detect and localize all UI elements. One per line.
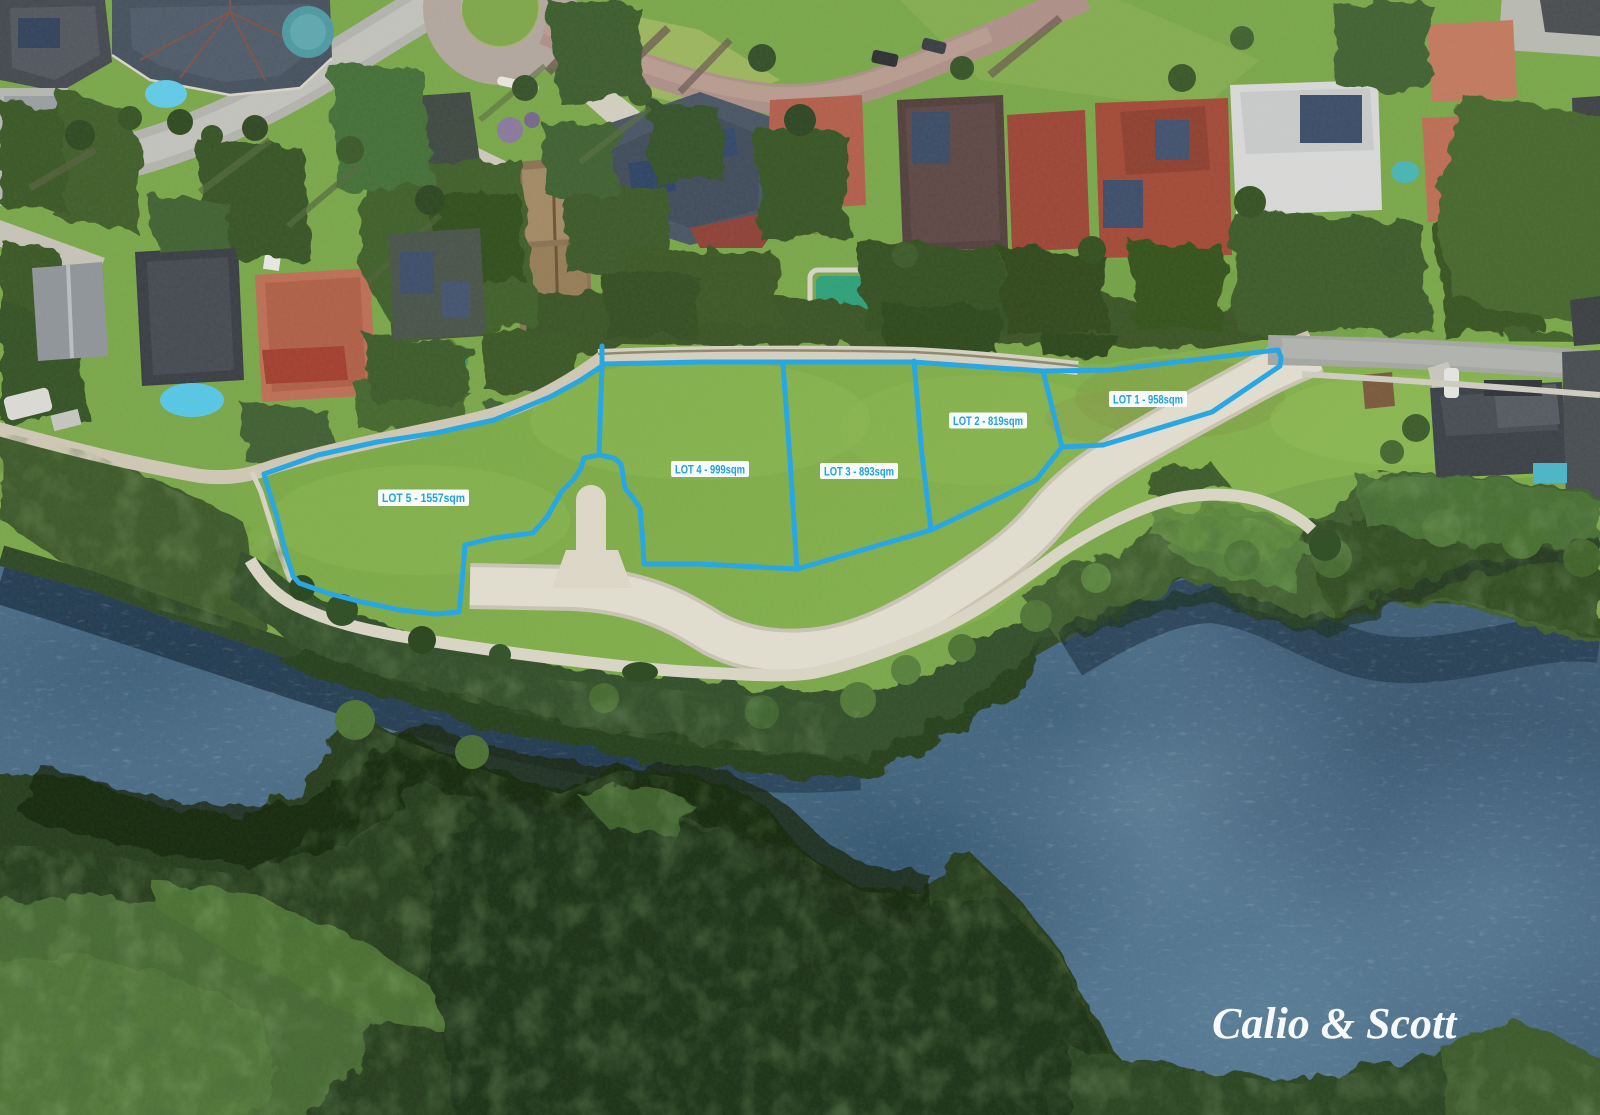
svg-text:LOT 2 - 819sqm: LOT 2 - 819sqm [953, 414, 1023, 428]
svg-text:LOT 5 - 1557sqm: LOT 5 - 1557sqm [382, 491, 465, 505]
svg-text:LOT 3 - 893sqm: LOT 3 - 893sqm [824, 465, 894, 479]
svg-text:Calio & Scott: Calio & Scott [1212, 999, 1458, 1048]
svg-text:LOT 4 - 999sqm: LOT 4 - 999sqm [675, 463, 745, 477]
svg-text:LOT 1 - 958sqm: LOT 1 - 958sqm [1113, 393, 1183, 407]
